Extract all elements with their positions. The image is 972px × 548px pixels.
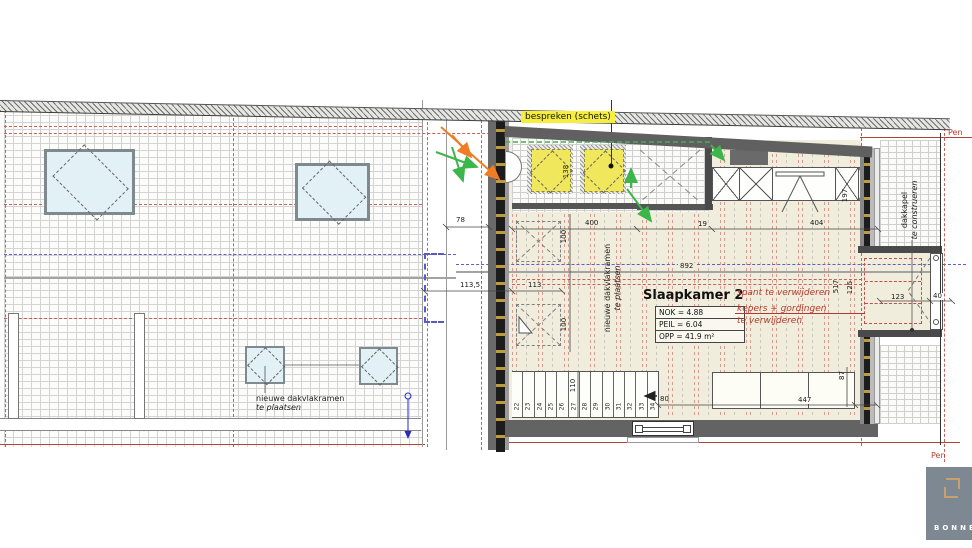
room-title: Slaapkamer 2: [643, 288, 743, 303]
dim-123: 123: [890, 294, 905, 301]
red-boundary-bottom-left: [0, 444, 425, 445]
gutter-band: [0, 418, 421, 431]
floorplan-canvas: 22 23 24 25 26 27 28 29 30 31 32 33 34: [0, 0, 972, 548]
new-skylights-note-line2: te plaatsen: [256, 403, 344, 412]
dim-517: 517: [833, 280, 840, 293]
stair-tread-number: 30: [604, 403, 611, 411]
staircase: 22 23 24 25 26 27 28 29 30 31 32 33 34: [512, 371, 659, 418]
stair-tread: 25: [546, 372, 557, 417]
roof-edge-line: [422, 100, 423, 447]
red-dashdot-vertical: [5, 100, 6, 447]
window-jamb: [683, 425, 691, 433]
dim-447: 447: [797, 397, 812, 404]
window-jamb: [635, 425, 643, 433]
discussion-note: bespreken (schets): [521, 111, 615, 123]
dim-19: 19: [698, 221, 707, 228]
stair-tread: 30: [603, 372, 614, 417]
dim-400: 400: [585, 220, 598, 227]
room-info-box: NOK = 4.88 PEIL = 6.04 OPP = 41.9 m²: [655, 306, 745, 343]
dormer-dashed-line: [865, 303, 921, 304]
dim-110: 110: [570, 379, 577, 392]
stair-tread-number: 26: [559, 403, 566, 411]
new-skylight: [359, 347, 398, 385]
skylight-opening-symbol: [301, 161, 365, 225]
window-frame-bar: [641, 427, 685, 432]
dormer-note-line1: dakkapel: [900, 170, 910, 250]
window-sill: [627, 437, 699, 443]
dormer-construction-outline: [864, 258, 922, 324]
stair-tread-number: 24: [536, 403, 543, 411]
vert-note-line1: nieuwe dakvlakramen: [603, 243, 613, 333]
red-boundary-bottom-right: [505, 442, 960, 443]
dim-40: 40: [932, 293, 943, 300]
dim-100-top: 100: [561, 230, 568, 243]
room-info-nok: NOK = 4.88: [656, 307, 744, 319]
dim-138: 138: [563, 165, 570, 178]
building-right-edge: [940, 133, 941, 445]
right-roof-grid-bottom: [880, 345, 940, 424]
dim-100-bottom: 100: [561, 318, 568, 331]
stair-tread: 33: [636, 372, 647, 417]
room-info-peil: PEIL = 6.04: [656, 319, 744, 331]
dim-197: 197: [842, 189, 849, 202]
room-info-opp: OPP = 41.9 m²: [656, 331, 744, 342]
red-dashdot-line: [4, 126, 422, 127]
stair-tread-number: 22: [514, 403, 521, 411]
property-line-label-top: Pen: [948, 128, 963, 137]
logo-glyph-lower: [944, 487, 958, 498]
skylight-outline: [516, 304, 561, 346]
property-line-label-bottom: Pen: [931, 451, 946, 460]
stair-tread-number: 25: [548, 403, 555, 411]
logo-text: BONNE: [934, 524, 972, 532]
wall-strip: [8, 313, 19, 419]
skylight-yellow-fill: [584, 149, 624, 192]
stair-tread: 31: [614, 372, 625, 417]
skylight-opening-symbol: [583, 150, 626, 193]
wardrobe-x-cell: [713, 168, 740, 200]
new-skylights-note: nieuwe dakvlakramen te plaatsen: [256, 394, 344, 412]
party-wall-insulation: [496, 118, 505, 452]
low-cupboard: [712, 372, 855, 409]
skylight-opening-symbol: [361, 348, 399, 386]
dormer-dashed-line: [865, 281, 921, 282]
skylight-opening-symbol: [247, 347, 285, 385]
blue-dashdot-line: [4, 254, 456, 255]
skylight-outline: [516, 221, 561, 262]
green-arrow: [452, 147, 463, 181]
wardrobe-x-cell: [740, 168, 773, 200]
storage-block: [730, 150, 768, 165]
dim-78: 78: [456, 217, 465, 224]
blue-dashed-marker: [424, 253, 444, 323]
cupboard-divider: [760, 373, 761, 408]
new-skylights-vertical-note: nieuwe dakvlakramen te plaatsen: [603, 243, 643, 333]
knee-wall: [512, 203, 638, 209]
wall-strip: [134, 313, 145, 419]
wardrobe-rod-cell: [773, 168, 836, 200]
dim-87: 87: [839, 371, 846, 380]
roof-edge-line: [446, 112, 447, 450]
knee-wall: [637, 204, 713, 210]
dormer-note-line2: te construeren: [910, 170, 920, 250]
red-dashdot-vertical: [233, 113, 234, 447]
existing-skylight: [295, 163, 370, 221]
vert-note-line2: te plaatsen: [613, 243, 623, 333]
red-dashdot-vertical: [481, 120, 482, 450]
stair-tread-number: 23: [525, 403, 532, 411]
stair-tread: 28: [580, 372, 591, 417]
orange-arrow: [452, 135, 471, 157]
ridge-line: [4, 277, 456, 279]
dormer-note: dakkapel te construeren: [900, 170, 922, 250]
stair-tread-number: 28: [582, 403, 589, 411]
stair-partition: [658, 371, 659, 418]
red-boundary-top-right: [860, 137, 972, 138]
stair-tread: 22: [512, 372, 523, 417]
purlin-remove-line: [512, 279, 862, 280]
dim-113-5: 113,5: [460, 282, 480, 289]
dim-80: 80: [660, 396, 669, 403]
red-dashdot-line: [4, 133, 505, 134]
dormer-sill-wall: [858, 330, 942, 337]
dormer-wall-layer: [874, 148, 880, 248]
new-skylights-note-line1: nieuwe dakvlakramen: [256, 394, 344, 403]
red-underline: [735, 313, 865, 314]
stair-tread-number: 31: [615, 403, 622, 411]
green-arrow: [436, 152, 477, 167]
stair-tread: 24: [535, 372, 546, 417]
stair-tread-number: 33: [638, 403, 645, 411]
skylight-opening-symbol: [52, 145, 129, 222]
stair-tread: 29: [591, 372, 602, 417]
new-skylight-highlighted: [580, 145, 626, 194]
dormer-wall-layer: [874, 332, 880, 424]
stair-tread: 32: [625, 372, 636, 417]
stair-tread-number: 29: [593, 403, 600, 411]
dim-404: 404: [810, 220, 823, 227]
stair-tread-number: 34: [649, 403, 656, 411]
stair-tread: 23: [523, 372, 534, 417]
property-line-vertical: [944, 128, 945, 462]
stair-tread: 26: [557, 372, 568, 417]
wardrobe-row: [712, 167, 878, 201]
existing-skylight: [44, 149, 135, 215]
dim-125: 125: [847, 281, 854, 294]
purlin-remove-line: [512, 284, 862, 285]
remove-truss-note: spant te verwijderen: [737, 288, 830, 298]
architect-logo: BONNE: [926, 467, 972, 540]
stair-tread-number: 27: [570, 403, 577, 411]
party-wall-layer: [488, 120, 496, 450]
dim-113: 113: [527, 282, 542, 289]
red-dashdot-line: [4, 318, 422, 319]
facade-window: [632, 421, 694, 436]
stair-tread-number: 32: [627, 403, 634, 411]
dim-892: 892: [678, 263, 695, 270]
new-skylight: [245, 346, 285, 384]
remove-rafters-note-line2: te verwijderen: [737, 316, 802, 326]
